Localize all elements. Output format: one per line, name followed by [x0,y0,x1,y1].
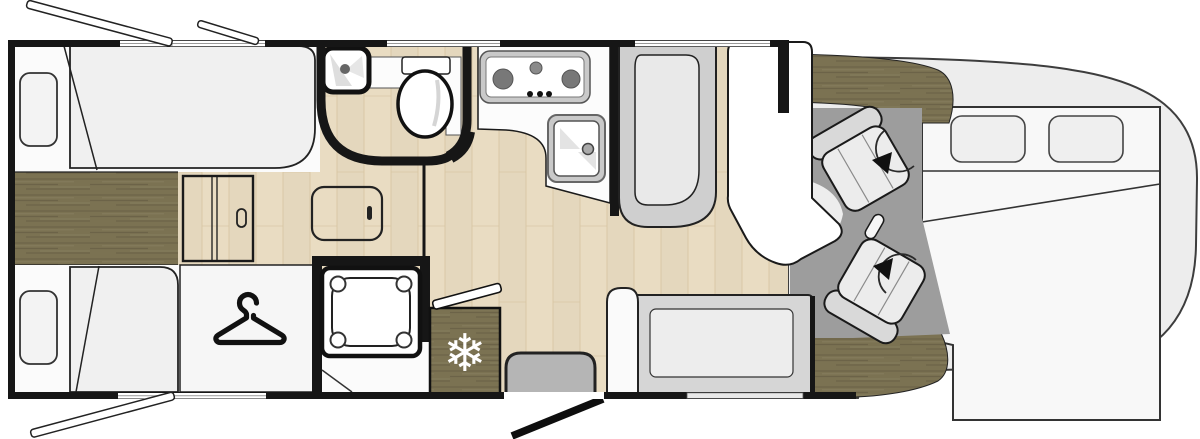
floorplan-canvas: ❄ [0,0,1200,439]
corner-basin [323,48,369,92]
bed-pillow [951,116,1025,162]
window [387,41,500,47]
kitchen-dinette-wall [610,44,619,216]
wardrobe [180,265,320,392]
entrance-door [512,399,603,436]
left-wall [8,40,15,399]
bed-pillow [1049,116,1123,162]
stove-knob [527,91,533,97]
faucet-dot [340,64,350,74]
cab-wall-stub-top [778,40,789,113]
burner [493,69,513,89]
bed-pillow [20,73,57,146]
rear-bed-bottom [14,265,180,392]
duvet [70,267,178,392]
burner [562,70,580,88]
duvet [70,46,315,168]
dinette-bench [619,44,716,227]
rear-bed-top [14,44,320,172]
faucet-dot [583,144,594,155]
sofa-end-wall [810,296,815,397]
side-sofa [607,288,815,397]
kitchen-sink [548,115,605,182]
entry-step [506,353,595,393]
stove-knob [546,91,552,97]
window-flap [26,0,173,47]
shower-tray [322,268,420,356]
floorplan-svg: ❄ [0,0,1200,439]
bed-pillow [20,291,57,364]
hatch-handle [367,206,372,220]
stove-knob [537,91,543,97]
door-opening [504,392,604,399]
shower-wall-top [312,256,430,266]
stove [480,51,590,103]
sofa-armrest [607,288,638,397]
garage-hatch [687,393,803,399]
shower-room [312,256,430,392]
snowflake-icon: ❄ [443,324,487,384]
window [118,393,266,399]
center-walkway [14,172,178,265]
toilet [398,57,452,137]
fridge: ❄ [430,308,500,395]
drop-down-bed [922,107,1160,420]
burner [530,62,542,74]
window [635,41,770,47]
